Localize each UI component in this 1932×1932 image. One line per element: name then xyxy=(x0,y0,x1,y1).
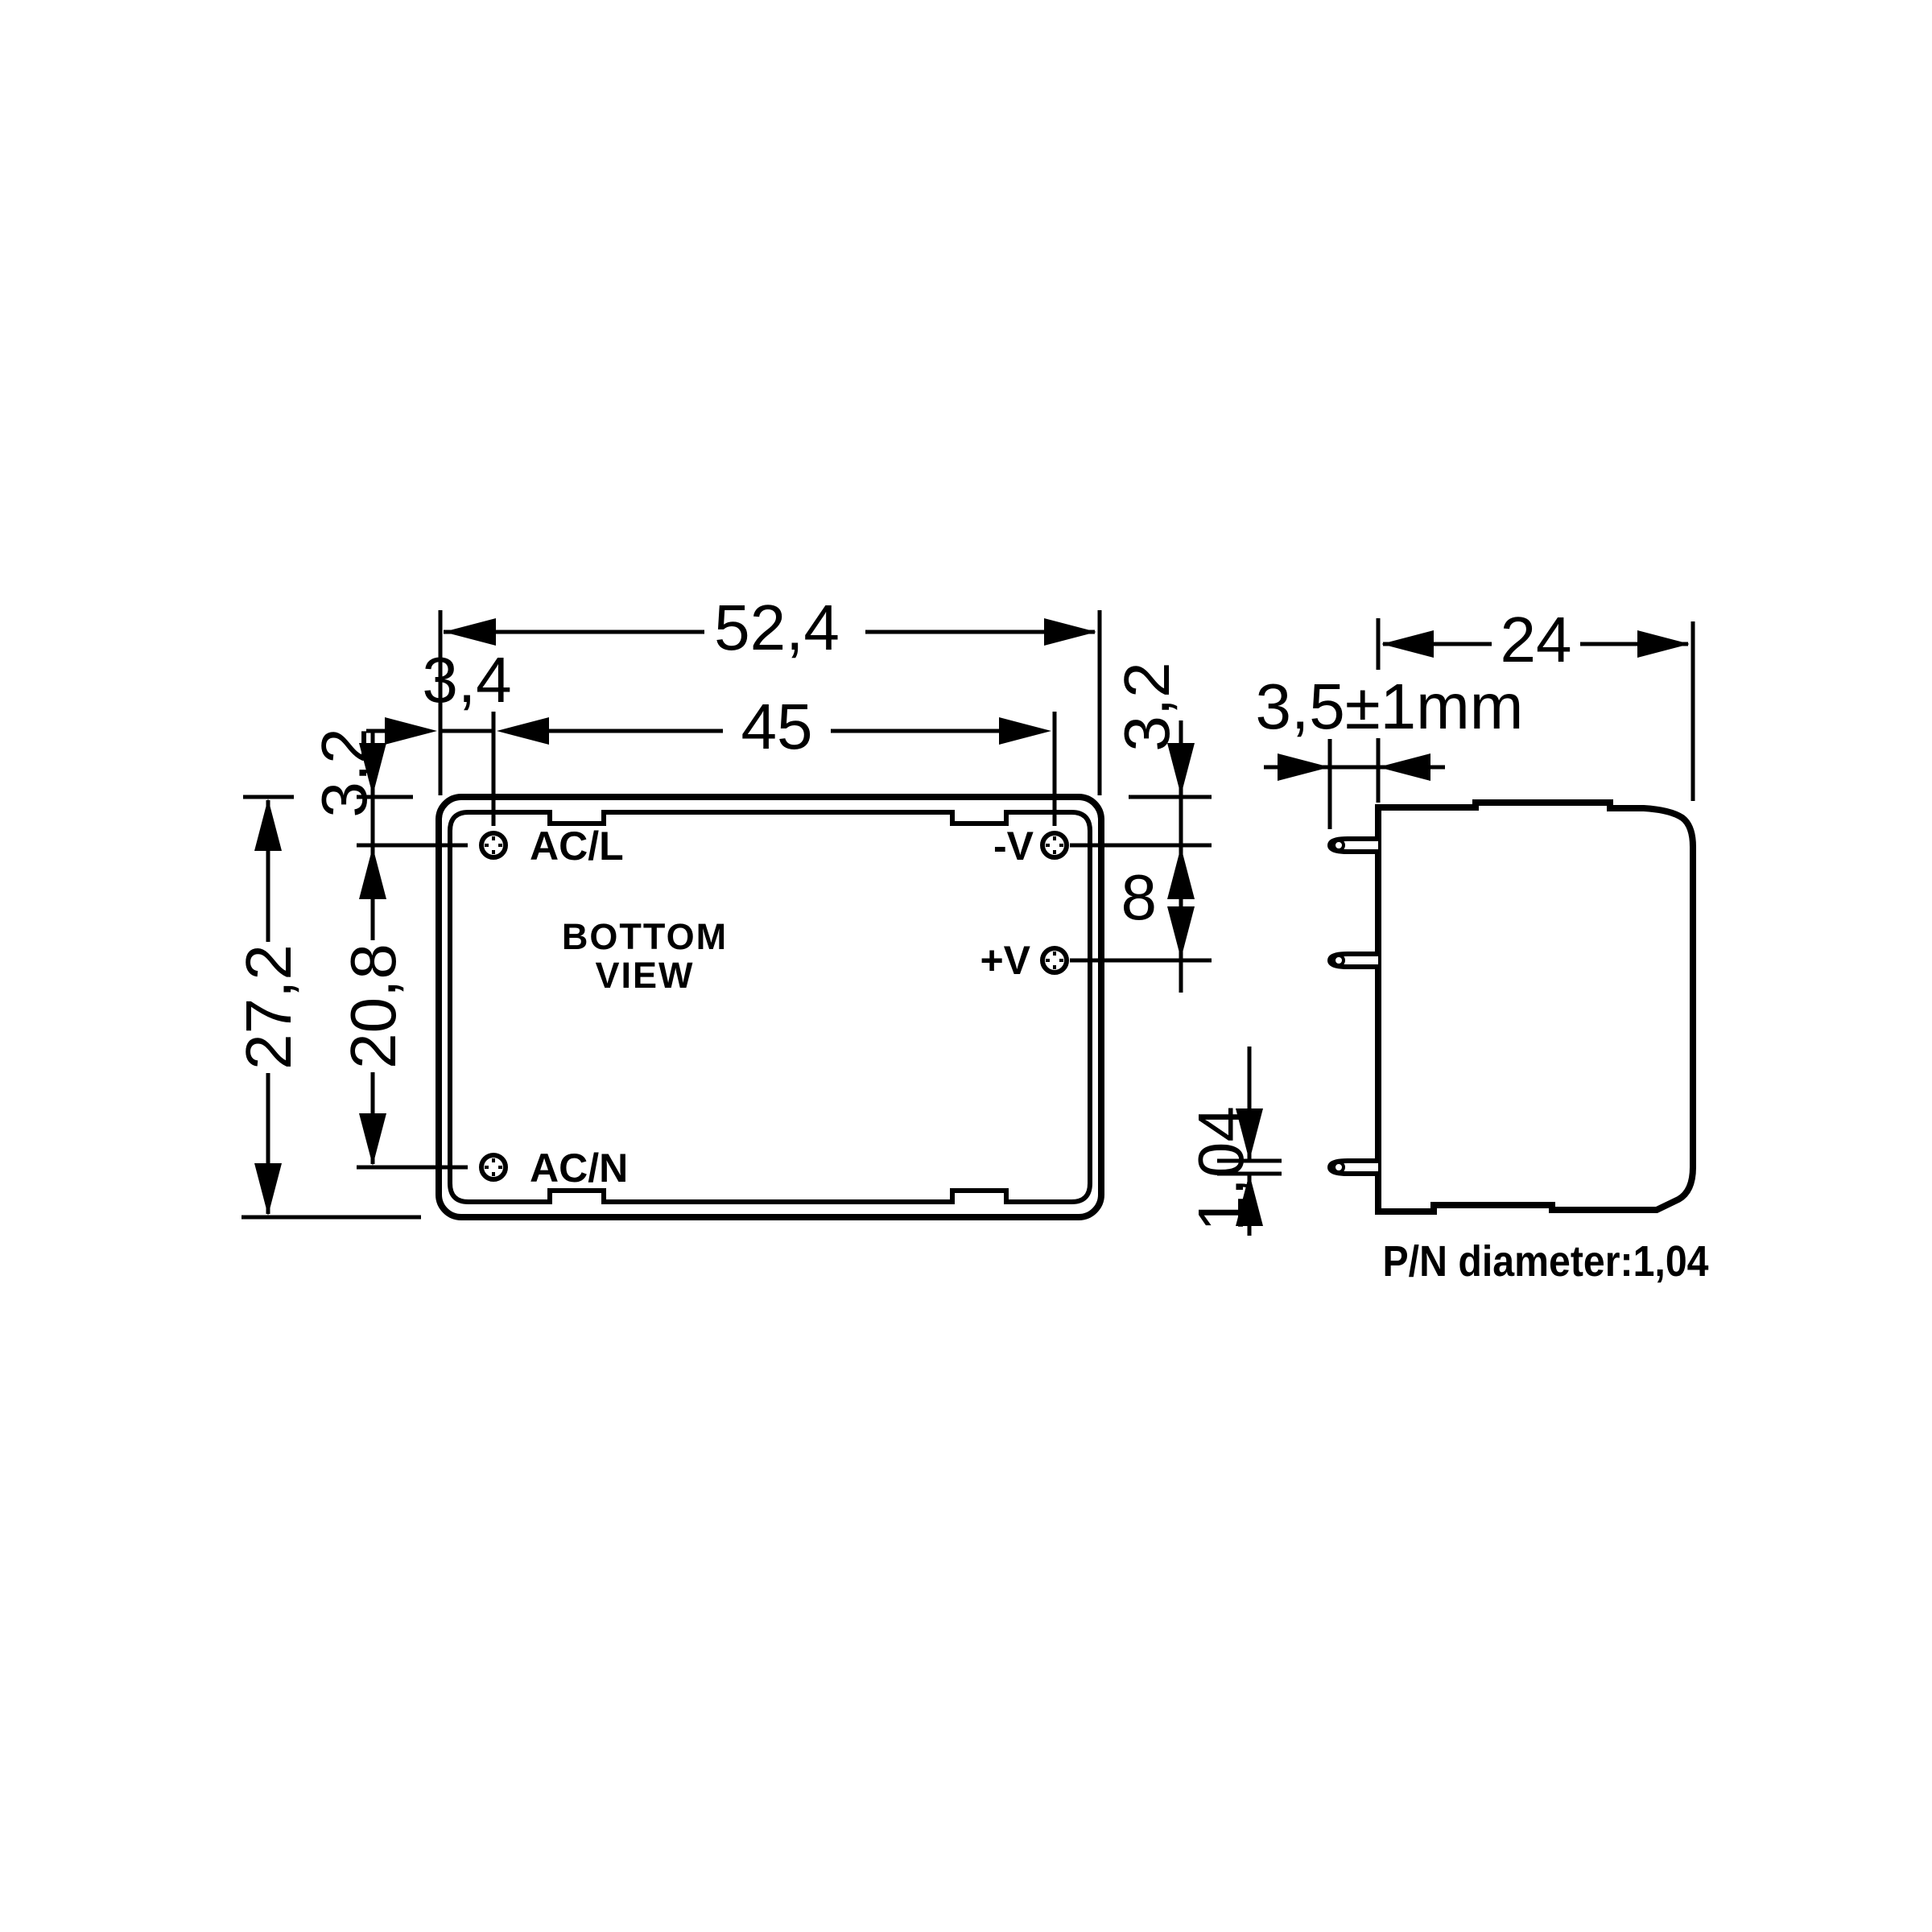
dim-pin-span-y: 20,8 xyxy=(337,943,409,1166)
drawing-canvas: AC/L AC/N -V +V BOTTOM VIEW 52,4 xyxy=(0,0,1932,1932)
dim-total-width-arrow-left xyxy=(444,618,496,646)
side-view-pin-bottom xyxy=(1330,1161,1378,1174)
dim-pin-span-x-arrow-right xyxy=(999,717,1051,745)
bottom-view: AC/L AC/N -V +V BOTTOM VIEW xyxy=(439,797,1101,1217)
dim-output-pin-pitch-arrow-down xyxy=(1167,906,1195,959)
dim-output-pin-pitch-arrow-up xyxy=(1167,847,1195,899)
side-view-pin-middle-tip-icon xyxy=(1334,956,1344,965)
dim-pin-diameter: 1,04 xyxy=(1185,1046,1282,1236)
dim-pin-offset-left-value: 3,4 xyxy=(422,644,511,716)
side-view-pin-top xyxy=(1330,839,1378,852)
dim-total-height-value: 27,2 xyxy=(233,944,304,1070)
dim-pin-span-y-value: 20,8 xyxy=(337,943,409,1069)
dim-total-height-arrow-up xyxy=(254,799,282,851)
dim-total-width-value: 52,4 xyxy=(714,592,840,663)
dim-output-pin-pitch: 8 xyxy=(1121,847,1195,959)
dim-pin-diameter-value: 1,04 xyxy=(1185,1106,1257,1232)
dim-top-to-pin-left-value: 3,2 xyxy=(308,728,380,817)
side-view-pin-top-tip-icon xyxy=(1334,840,1344,850)
dim-pin-length-arrow-right xyxy=(1378,753,1430,781)
pin-label-v-minus: -V xyxy=(993,824,1034,869)
dim-output-pin-pitch-value: 8 xyxy=(1121,861,1158,933)
dim-depth-value: 24 xyxy=(1501,604,1572,675)
dim-pin-length-value: 3,5±1mm xyxy=(1256,671,1524,742)
dim-pin-span-x-arrow-left xyxy=(497,717,549,745)
dim-top-to-pin-left-arrow-up xyxy=(359,847,386,899)
pin-diameter-note: P/N diameter:1,04 xyxy=(1383,1237,1709,1286)
bottom-view-caption-line2: VIEW xyxy=(595,955,694,996)
dim-total-height-arrow-down xyxy=(254,1163,282,1216)
side-view-pin-bottom-tip-icon xyxy=(1334,1162,1344,1172)
dim-pin-span-y-arrow-down xyxy=(359,1113,386,1166)
dim-pin-span-x-value: 45 xyxy=(741,691,813,762)
dim-total-height: 27,2 xyxy=(233,799,304,1216)
side-view-pin-middle xyxy=(1330,954,1378,967)
side-view xyxy=(1330,803,1693,1212)
side-view-body xyxy=(1378,803,1693,1212)
pin-label-ac-l: AC/L xyxy=(530,824,624,869)
dim-top-to-pin-left: 3,2 xyxy=(308,728,386,940)
dim-depth-arrow-right xyxy=(1637,630,1690,658)
dim-total-width-arrow-right xyxy=(1044,618,1096,646)
bottom-view-caption-line1: BOTTOM xyxy=(562,916,728,957)
dimension-drawing: AC/L AC/N -V +V BOTTOM VIEW 52,4 xyxy=(0,0,1932,1932)
dim-depth-arrow-left xyxy=(1381,630,1434,658)
pin-label-ac-n: AC/N xyxy=(530,1146,628,1191)
pin-label-v-plus: +V xyxy=(980,938,1030,983)
dim-top-to-pin-right-value: 3,2 xyxy=(1111,662,1183,751)
dim-pin-length-arrow-left xyxy=(1278,753,1330,781)
dim-pin-offset-left-arrow xyxy=(385,717,437,745)
